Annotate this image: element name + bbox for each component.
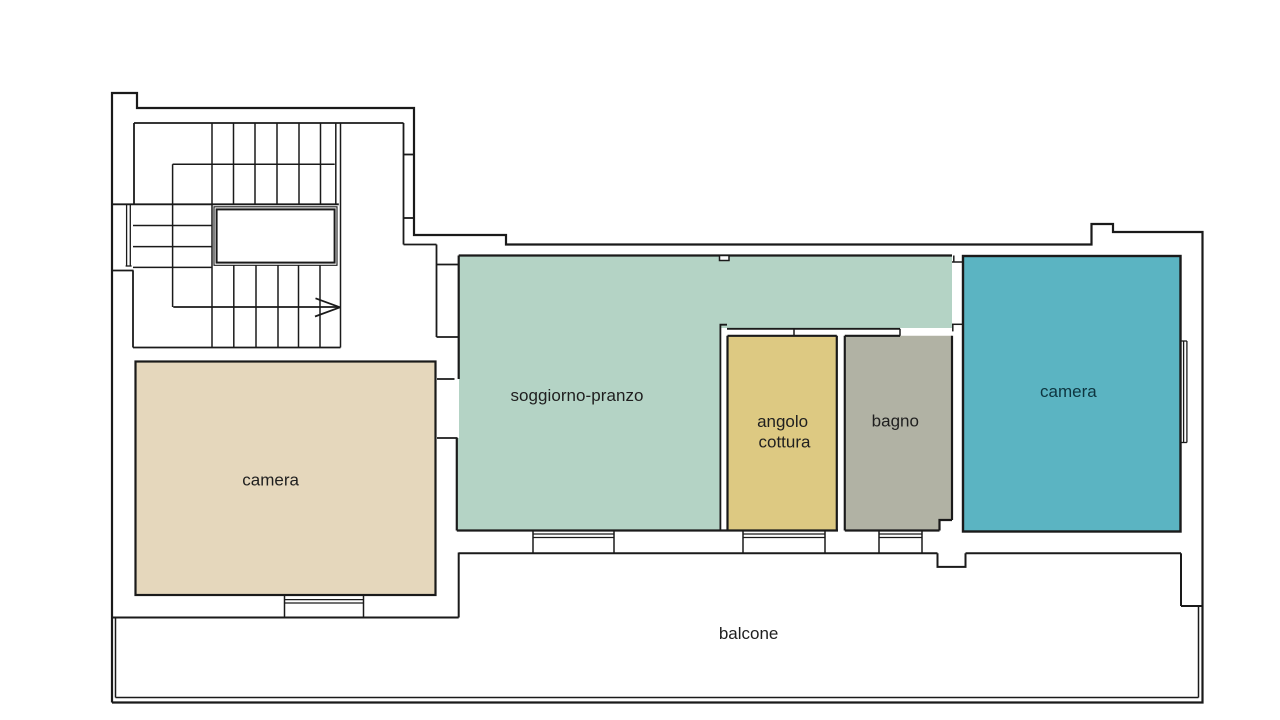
svg-text:camera: camera [1040,382,1097,401]
svg-text:angolo: angolo [757,412,808,431]
svg-text:cottura: cottura [759,433,812,452]
svg-text:camera: camera [242,471,299,490]
svg-text:soggiorno-pranzo: soggiorno-pranzo [510,386,643,405]
svg-text:bagno: bagno [872,412,919,431]
svg-text:balcone: balcone [719,624,779,643]
